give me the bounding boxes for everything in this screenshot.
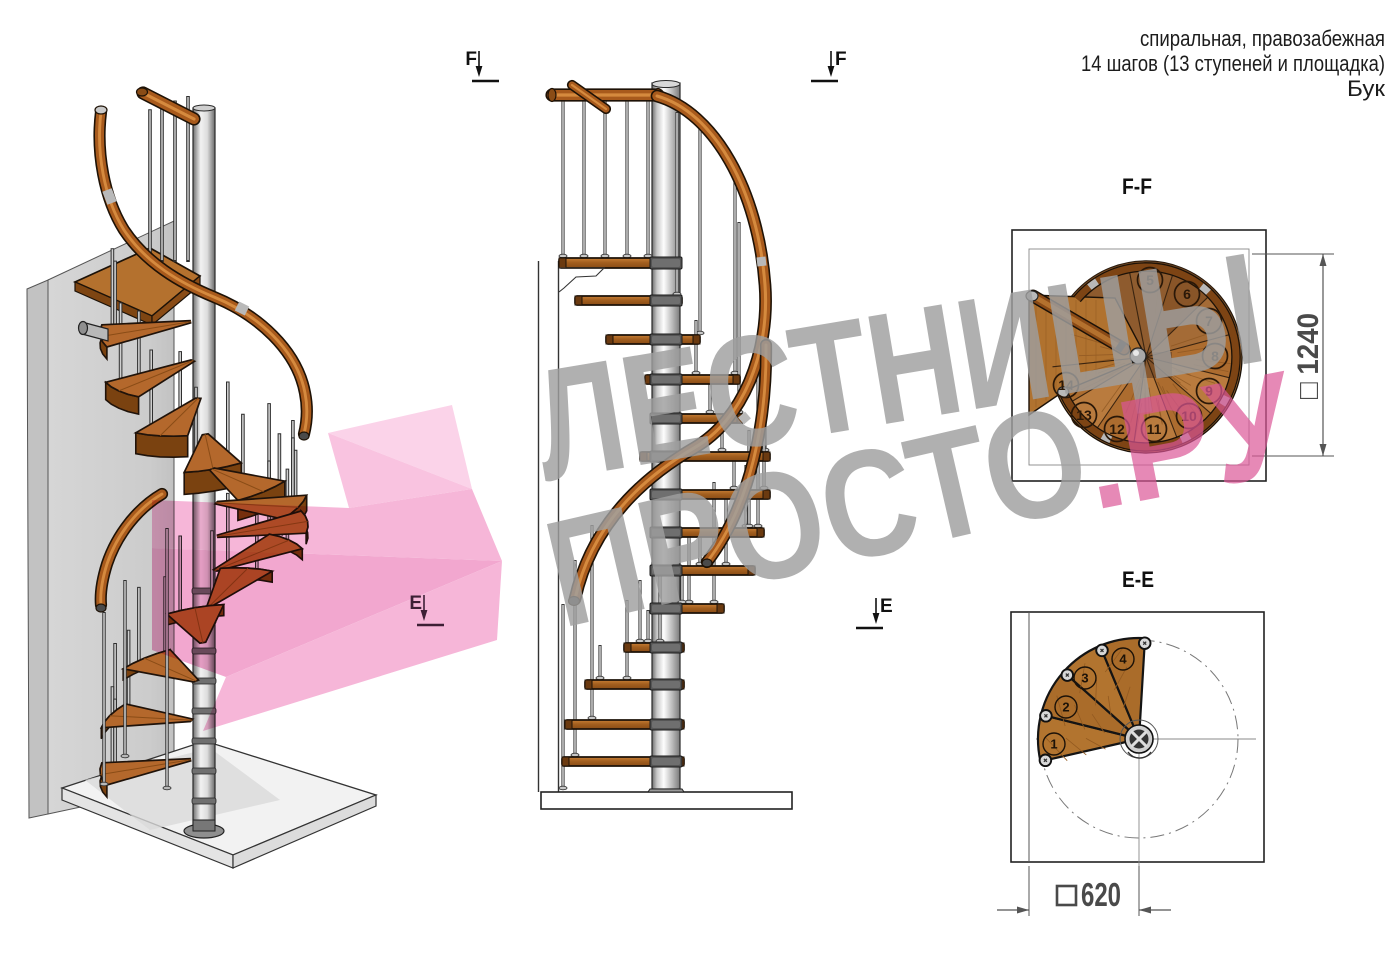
svg-text:F: F [465,49,477,70]
svg-text:1: 1 [1050,737,1057,752]
svg-text:14 шагов (13 ступеней и площад: 14 шагов (13 ступеней и площадка) [1081,51,1385,76]
svg-text:E-E: E-E [1122,567,1154,592]
svg-text:Бук: Бук [1347,76,1385,101]
svg-text:620: 620 [1081,876,1121,913]
svg-text:2: 2 [1062,700,1069,715]
svg-text:□ 1240: □ 1240 [1292,313,1325,399]
svg-text:4: 4 [1119,652,1127,667]
svg-text:F: F [835,49,847,70]
svg-text:3: 3 [1081,671,1088,686]
svg-text:F-F: F-F [1122,174,1152,199]
svg-text:спиральная, правозабежная: спиральная, правозабежная [1140,26,1385,51]
svg-text:E: E [880,596,893,617]
svg-text:E: E [409,593,422,614]
